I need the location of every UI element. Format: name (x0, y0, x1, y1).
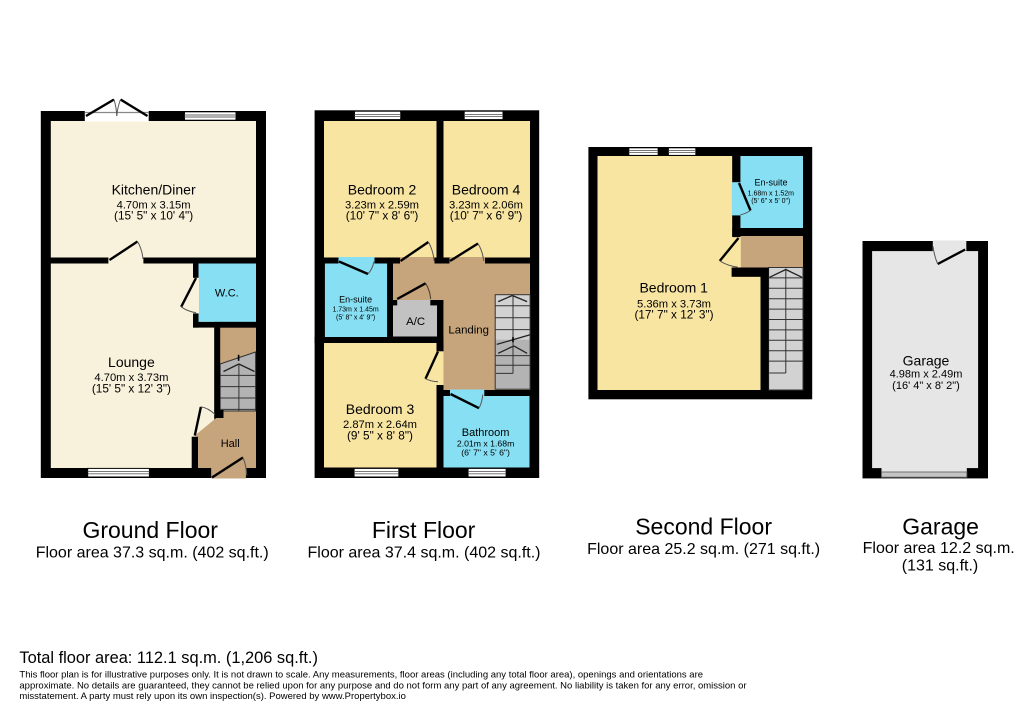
svg-text:(16' 4" x 8' 2"): (16' 4" x 8' 2") (892, 380, 960, 392)
svg-text:approximate. No details are gu: approximate. No details are guaranteed, … (19, 680, 746, 691)
svg-text:(10' 7" x 6' 9"): (10' 7" x 6' 9") (450, 209, 523, 223)
svg-text:Floor area 12.2 sq.m.: Floor area 12.2 sq.m. (863, 540, 1015, 557)
svg-text:Bedroom 2: Bedroom 2 (348, 182, 417, 198)
svg-text:(10' 7" x 8' 6"): (10' 7" x 8' 6") (346, 209, 419, 223)
svg-text:A/C: A/C (406, 316, 425, 328)
svg-text:(9' 5" x 8' 8"): (9' 5" x 8' 8") (347, 428, 413, 442)
svg-text:This floor plan is for illustr: This floor plan is for illustrative purp… (19, 670, 703, 681)
svg-text:First Floor: First Floor (372, 517, 476, 543)
svg-text:(5' 6" x 5' 0"): (5' 6" x 5' 0") (751, 198, 790, 205)
svg-text:Bedroom 1: Bedroom 1 (639, 280, 708, 296)
svg-text:Floor area 25.2 sq.m. (271 sq.: Floor area 25.2 sq.m. (271 sq.ft.) (587, 541, 820, 558)
svg-text:Second Floor: Second Floor (635, 513, 772, 539)
svg-text:Bathroom: Bathroom (462, 427, 510, 439)
svg-text:(131 sq.ft.): (131 sq.ft.) (902, 558, 978, 575)
svg-text:Hall: Hall (221, 438, 240, 450)
svg-text:Kitchen/Diner: Kitchen/Diner (112, 181, 196, 197)
svg-text:Total floor area: 112.1 sq.m.: Total floor area: 112.1 sq.m. (1,206 sq.… (19, 649, 318, 667)
svg-text:(6' 7" x 5' 6"): (6' 7" x 5' 6") (461, 448, 510, 458)
svg-text:W.C.: W.C. (215, 288, 239, 300)
svg-text:Floor area 37.4 sq.m. (402 sq.: Floor area 37.4 sq.m. (402 sq.ft.) (308, 545, 541, 562)
svg-text:Garage: Garage (903, 352, 950, 368)
svg-text:Floor area 37.3 sq.m. (402 sq.: Floor area 37.3 sq.m. (402 sq.ft.) (36, 545, 269, 562)
svg-text:En-suite: En-suite (339, 295, 372, 305)
svg-text:Lounge: Lounge (108, 354, 155, 370)
svg-text:Bedroom 4: Bedroom 4 (452, 182, 521, 198)
svg-text:Garage: Garage (902, 513, 979, 539)
svg-text:4.98m x 2.49m: 4.98m x 2.49m (890, 369, 963, 381)
svg-text:(15' 5" x 12' 3"): (15' 5" x 12' 3") (92, 381, 171, 395)
svg-text:(17' 7" x 12' 3"): (17' 7" x 12' 3") (634, 308, 713, 322)
svg-text:1.73m x 1.45m: 1.73m x 1.45m (332, 307, 378, 314)
svg-text:Bedroom 3: Bedroom 3 (346, 401, 415, 417)
svg-text:(15' 5" x 10' 4"): (15' 5" x 10' 4") (114, 209, 193, 223)
svg-text:(5' 8" x 4' 9"): (5' 8" x 4' 9") (336, 314, 375, 321)
svg-text:En-suite: En-suite (754, 178, 787, 188)
svg-text:Landing: Landing (448, 324, 489, 336)
svg-text:1.68m x 1.52m: 1.68m x 1.52m (748, 190, 794, 197)
svg-text:Ground Floor: Ground Floor (82, 517, 218, 543)
svg-text:misstatement. A party must rel: misstatement. A party must rely upon its… (19, 691, 406, 702)
